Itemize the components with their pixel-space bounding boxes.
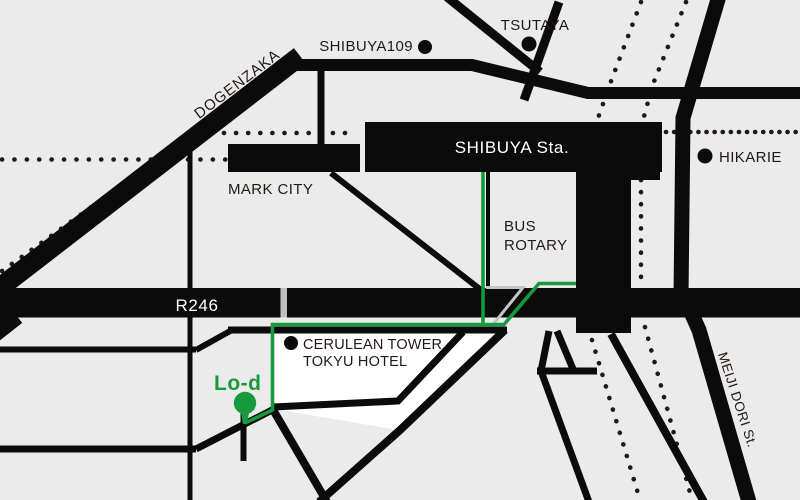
poi-dot-shibuya109 [418,40,432,54]
map-canvas: SHIBUYA109 TSUTAYA SHIBUYA Sta. HIKARIE … [0,0,800,500]
label-cerulean-line2: TOKYU HOTEL [303,354,407,370]
label-shibuya-station: SHIBUYA Sta. [455,138,570,157]
label-cerulean-line1: CERULEAN TOWER [303,337,442,353]
poi-dot-tsutaya [522,37,537,52]
building-station-south-wing [576,172,631,333]
destination-pin-icon [234,392,256,414]
road-r246 [0,288,800,318]
label-tsutaya: TSUTAYA [501,17,570,34]
label-destination: Lo-d [214,372,261,395]
poi-dot-hikarie [698,149,713,164]
label-bus-rotary-line1: BUS [504,218,536,235]
r246-crossing-gap [281,288,288,318]
building-mark-city [228,144,360,172]
label-r246: R246 [175,296,218,315]
poi-dot-cerulean [284,336,298,350]
building-station-step [631,172,660,180]
shibuya-access-map: SHIBUYA109 TSUTAYA SHIBUYA Sta. HIKARIE … [0,0,800,500]
label-bus-rotary-line2: ROTARY [504,237,568,254]
label-hikarie: HIKARIE [719,149,782,166]
label-mark-city: MARK CITY [228,181,313,198]
label-shibuya109: SHIBUYA109 [319,38,413,55]
